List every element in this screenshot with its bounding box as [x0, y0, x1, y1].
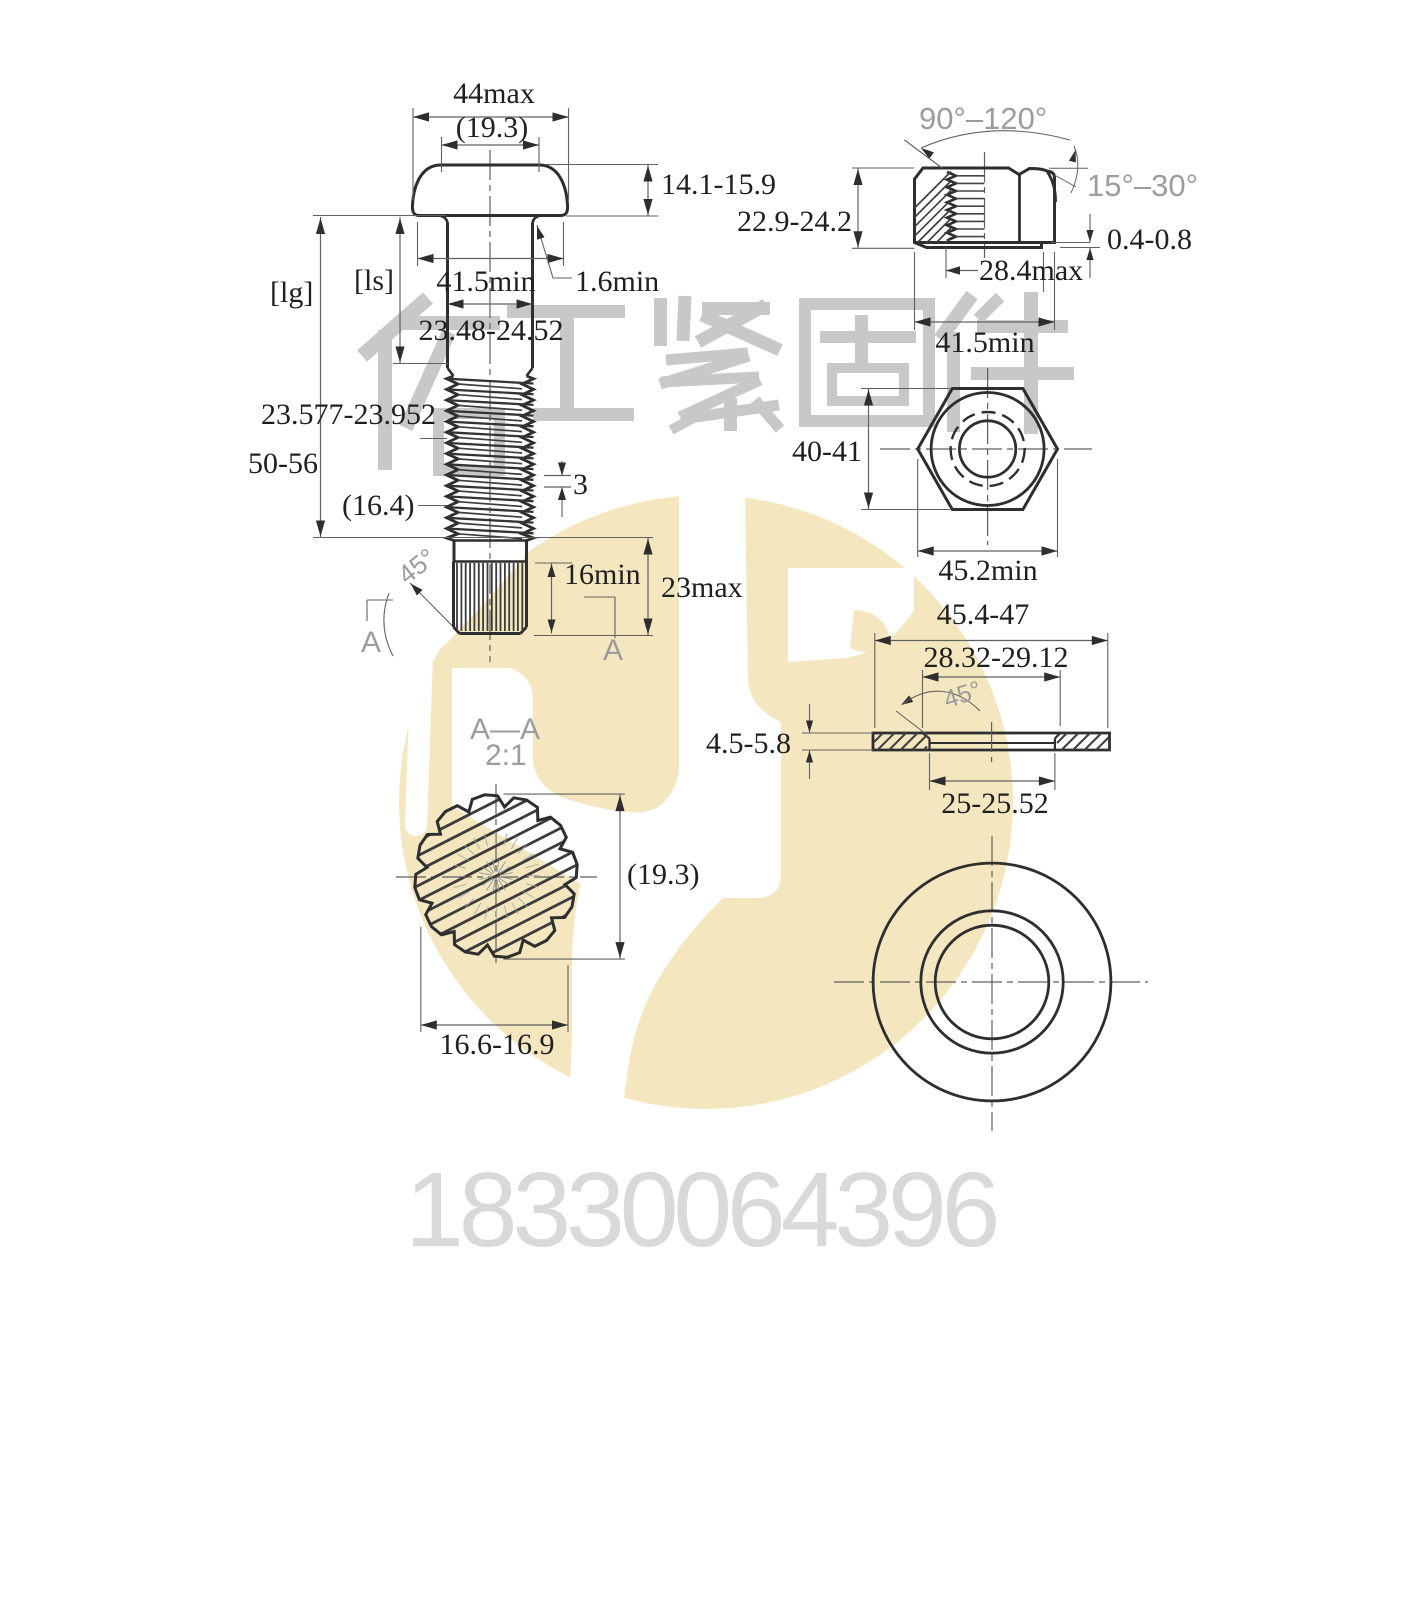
svg-text:18330064396: 18330064396: [405, 1151, 997, 1269]
svg-text:[lg]: [lg]: [270, 276, 313, 309]
svg-text:3: 3: [573, 468, 588, 501]
svg-text:1.6min: 1.6min: [575, 265, 659, 298]
svg-text:45.2min: 45.2min: [938, 554, 1037, 587]
svg-text:50-56: 50-56: [248, 447, 318, 480]
svg-text:41.5min: 41.5min: [935, 326, 1034, 359]
svg-text:(16.4): (16.4): [342, 489, 414, 522]
svg-text:90°–120°: 90°–120°: [919, 101, 1047, 136]
svg-text:2:1: 2:1: [485, 739, 527, 772]
svg-text:45.4-47: 45.4-47: [937, 598, 1030, 631]
svg-text:0.4-0.8: 0.4-0.8: [1107, 223, 1192, 256]
svg-text:23.577-23.952: 23.577-23.952: [261, 398, 436, 431]
svg-text:16min: 16min: [564, 558, 641, 591]
svg-text:(19.3): (19.3): [627, 858, 699, 891]
svg-text:14.1-15.9: 14.1-15.9: [661, 168, 776, 201]
svg-text:28.32-29.12: 28.32-29.12: [924, 641, 1069, 674]
svg-text:40-41: 40-41: [792, 435, 862, 468]
svg-text:22.9-24.2: 22.9-24.2: [737, 205, 852, 238]
svg-text:41.5min: 41.5min: [436, 265, 535, 298]
svg-text:23.48-24.52: 23.48-24.52: [419, 314, 564, 347]
svg-text:A: A: [603, 634, 623, 667]
svg-text:[ls]: [ls]: [354, 264, 394, 297]
svg-text:23max: 23max: [661, 571, 743, 604]
svg-text:44max: 44max: [453, 77, 535, 110]
svg-text:25-25.52: 25-25.52: [941, 787, 1049, 820]
svg-text:28.4max: 28.4max: [979, 254, 1083, 287]
svg-text:16.6-16.9: 16.6-16.9: [440, 1028, 555, 1061]
svg-text:4.5-5.8: 4.5-5.8: [706, 727, 791, 760]
svg-text:(19.3): (19.3): [456, 111, 528, 144]
svg-text:15°–30°: 15°–30°: [1087, 168, 1198, 203]
svg-text:A: A: [361, 626, 381, 659]
